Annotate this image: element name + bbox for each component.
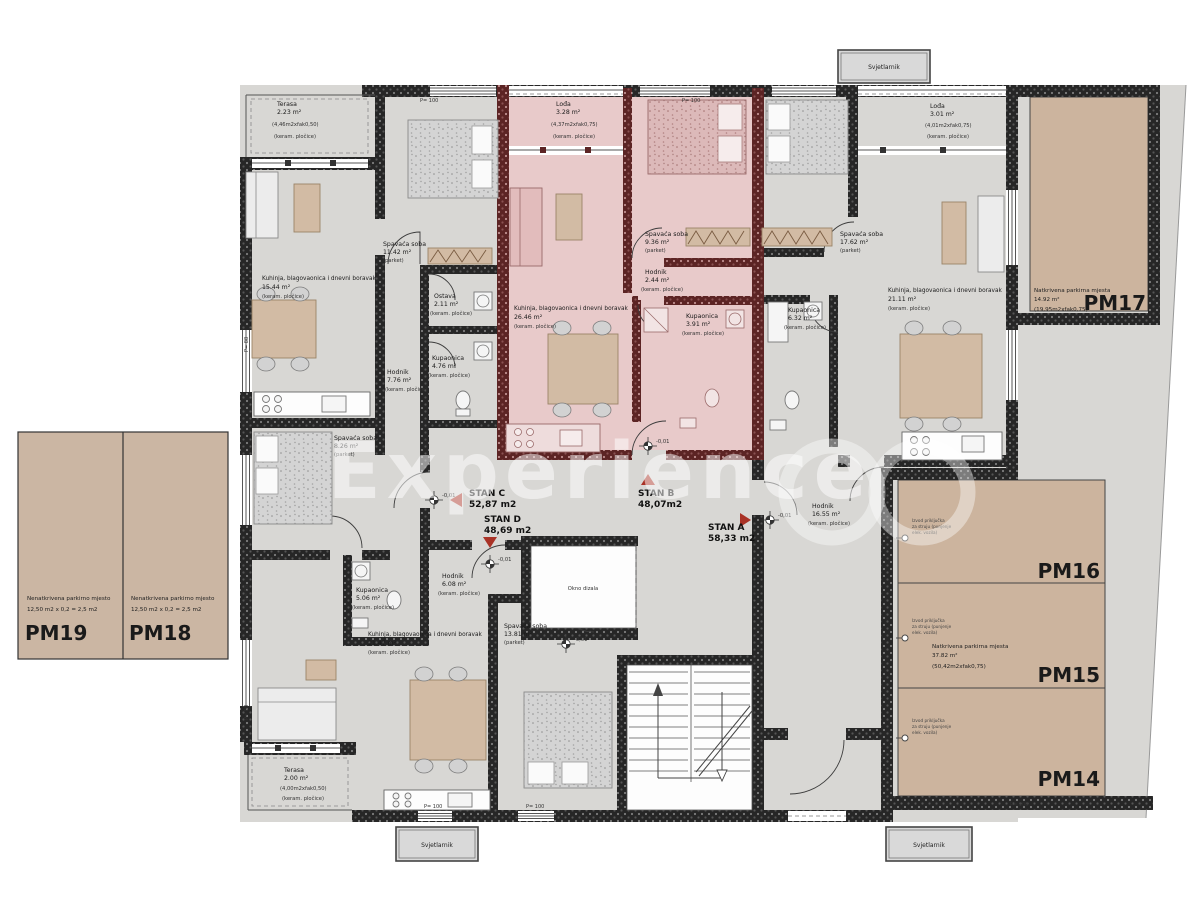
svg-text:21.11 m²: 21.11 m² bbox=[888, 296, 917, 303]
svg-text:13.81 m²: 13.81 m² bbox=[504, 631, 533, 638]
elevator-shaft: Okno dizala bbox=[531, 546, 636, 628]
ev-note-line: elek. vozila) bbox=[912, 630, 938, 635]
level-value: -0,01 bbox=[574, 637, 587, 643]
svg-text:(keram. pločice): (keram. pločice) bbox=[784, 324, 826, 331]
svg-text:(keram. pločice): (keram. pločice) bbox=[282, 795, 324, 802]
svg-text:Hodnik: Hodnik bbox=[442, 573, 464, 580]
skylight-top: Svjetlarnik bbox=[838, 50, 930, 83]
ev-note-line: Izvod priključka bbox=[912, 718, 945, 723]
wardrobe-bedroom-c1 bbox=[428, 248, 492, 264]
svg-text:Kupaonica: Kupaonica bbox=[788, 307, 820, 314]
svg-text:15.44 m²: 15.44 m² bbox=[262, 284, 291, 291]
skylight-label: Svjetlarnik bbox=[421, 842, 453, 849]
parapet-label: P= 100 bbox=[526, 804, 544, 810]
svg-text:Spavaća soba: Spavaća soba bbox=[840, 230, 883, 238]
svg-text:4.76 m²: 4.76 m² bbox=[432, 363, 457, 370]
svg-text:(keram. pločice): (keram. pločice) bbox=[368, 649, 410, 656]
kitchen-living-c bbox=[254, 392, 370, 416]
svg-text:(keram. pločice): (keram. pločice) bbox=[514, 323, 556, 330]
svg-text:(parket): (parket) bbox=[383, 258, 404, 264]
sliding-door-terasa-d bbox=[252, 744, 340, 753]
parapet-label: P= 100 bbox=[424, 804, 442, 810]
level-value: -0,01 bbox=[498, 557, 511, 563]
parking-label-pm16: PM16 bbox=[1038, 559, 1100, 583]
window-left-living-d bbox=[240, 640, 252, 706]
svg-text:2.11 m²: 2.11 m² bbox=[434, 301, 459, 308]
sliding-door-loggia-b bbox=[509, 146, 623, 155]
svg-text:3.01 m²: 3.01 m² bbox=[930, 111, 955, 118]
svg-text:3.28 m²: 3.28 m² bbox=[556, 109, 581, 116]
svg-text:(keram. pločice): (keram. pločice) bbox=[262, 293, 304, 300]
railing-loggia-b-top bbox=[509, 86, 623, 96]
parking-label-pm14: PM14 bbox=[1038, 767, 1100, 791]
svg-text:PM15: PM15 bbox=[1038, 663, 1100, 687]
railing-loggia-a-top bbox=[858, 86, 1006, 96]
svg-text:(4,37m2xfak0,75): (4,37m2xfak0,75) bbox=[551, 122, 598, 128]
svg-text:PM18: PM18 bbox=[129, 621, 191, 645]
skylight-bottom-left: Svjetlarnik bbox=[396, 827, 478, 861]
parapet-label: P= 100 bbox=[682, 98, 700, 104]
window-left-bedroom-c2 bbox=[240, 455, 252, 525]
svg-text:Kupaonica: Kupaonica bbox=[432, 355, 464, 362]
svg-text:Kuhinja, blagovaonica i dnevni: Kuhinja, blagovaonica i dnevni boravak bbox=[888, 288, 1003, 294]
wardrobe-bedroom-a bbox=[762, 228, 832, 246]
window-right-living-a bbox=[1006, 190, 1018, 265]
svg-text:7.76 m²: 7.76 m² bbox=[387, 377, 412, 384]
svg-text:Kupaonica: Kupaonica bbox=[686, 313, 718, 320]
parapet-label: P= 100 bbox=[1010, 802, 1028, 808]
svg-text:21.47 m²: 21.47 m² bbox=[368, 640, 397, 647]
window-top-bedroom-c bbox=[430, 86, 496, 96]
svg-text:Kupaonica: Kupaonica bbox=[356, 587, 388, 594]
svg-text:Nenatkrivena parkirno mjesto: Nenatkrivena parkirno mjesto bbox=[27, 596, 111, 602]
svg-text:Ostava: Ostava bbox=[434, 293, 456, 300]
svg-text:PM14: PM14 bbox=[1038, 767, 1100, 791]
ev-note-line: Izvod priključka bbox=[912, 618, 945, 623]
bed-bedroom-c1 bbox=[408, 120, 498, 198]
svg-text:Terasa: Terasa bbox=[276, 101, 297, 108]
svg-text:Lođa: Lođa bbox=[556, 101, 571, 108]
svg-text:6.32 m²: 6.32 m² bbox=[788, 315, 813, 322]
svg-text:26.46 m²: 26.46 m² bbox=[514, 314, 543, 321]
bed-bedroom-a bbox=[766, 100, 848, 174]
svg-text:PM16: PM16 bbox=[1038, 559, 1100, 583]
svg-text:(parket): (parket) bbox=[504, 640, 525, 646]
svg-text:2.44 m²: 2.44 m² bbox=[645, 277, 670, 284]
svg-text:(parket): (parket) bbox=[645, 248, 666, 254]
svg-text:Nenatkrivena parkirno mjesto: Nenatkrivena parkirno mjesto bbox=[131, 596, 215, 602]
svg-text:2.23 m²: 2.23 m² bbox=[277, 109, 302, 116]
window-top-bedroom-b bbox=[640, 86, 710, 96]
ev-note-line: elek. vozila) bbox=[912, 730, 938, 735]
window-top-bedroom-a bbox=[772, 86, 836, 96]
svg-text:12,50 m2 x 0,2 = 2,5 m2: 12,50 m2 x 0,2 = 2,5 m2 bbox=[27, 607, 98, 613]
svg-text:STAN A: STAN A bbox=[708, 523, 745, 533]
svg-text:(4,01m2xfak0,75): (4,01m2xfak0,75) bbox=[925, 123, 972, 129]
svg-text:2.00 m²: 2.00 m² bbox=[284, 775, 309, 782]
parapet-label: P= 100 bbox=[420, 98, 438, 104]
svg-text:Spavaća soba: Spavaća soba bbox=[383, 240, 426, 248]
svg-text:Hodnik: Hodnik bbox=[645, 269, 667, 276]
svg-text:(parket): (parket) bbox=[840, 248, 861, 254]
bed-bedroom-d bbox=[524, 692, 612, 788]
skylight-bottom-right: Svjetlarnik bbox=[886, 827, 972, 861]
svg-text:PM19: PM19 bbox=[25, 621, 87, 645]
svg-text:Spavaća soba: Spavaća soba bbox=[645, 230, 688, 238]
svg-text:(keram. pločice): (keram. pločice) bbox=[888, 305, 930, 312]
ev-note-line: za struju (punjenje bbox=[912, 624, 952, 629]
wardrobe-bedroom-b bbox=[686, 228, 750, 246]
svg-text:(keram. pločice): (keram. pločice) bbox=[274, 133, 316, 140]
dining-table-living-a bbox=[900, 321, 982, 431]
svg-text:12,50 m2 x 0,2 = 2,5 m2: 12,50 m2 x 0,2 = 2,5 m2 bbox=[131, 607, 202, 613]
svg-text:58,33 m2: 58,33 m2 bbox=[708, 534, 755, 544]
svg-text:(keram. pločice): (keram. pločice) bbox=[428, 372, 470, 379]
dining-table-living-b bbox=[548, 321, 618, 417]
svg-text:Hodnik: Hodnik bbox=[387, 369, 409, 376]
svg-text:Spavaća soba: Spavaća soba bbox=[504, 622, 547, 630]
svg-text:Terasa: Terasa bbox=[283, 767, 304, 774]
staircase bbox=[627, 665, 752, 810]
svg-text:14.92 m²: 14.92 m² bbox=[1034, 296, 1059, 303]
svg-text:(4,46m2xfak0,50): (4,46m2xfak0,50) bbox=[272, 122, 319, 128]
ev-note-line: Izvod priključka bbox=[912, 518, 945, 523]
parking-label-pm17: Natkrivena parkirna mjesta 14.92 m² (19,… bbox=[1034, 288, 1146, 315]
skylight-label: Svjetlarnik bbox=[913, 842, 945, 849]
svg-text:Kuhinja, blagovaonica i dnevni: Kuhinja, blagovaonica i dnevni boravak bbox=[514, 306, 629, 312]
svg-text:3.91 m²: 3.91 m² bbox=[686, 321, 711, 328]
dining-table-living-d bbox=[410, 667, 486, 773]
svg-text:(keram. pločice): (keram. pločice) bbox=[808, 520, 850, 527]
svg-text:48,69 m2: 48,69 m2 bbox=[484, 526, 531, 536]
svg-text:(keram. pločice): (keram. pločice) bbox=[553, 133, 595, 140]
building-entrance-opening bbox=[788, 811, 846, 821]
svg-text:(50,42m2xfak0,75): (50,42m2xfak0,75) bbox=[932, 664, 986, 670]
svg-text:(keram. pločice): (keram. pločice) bbox=[385, 386, 427, 393]
window-bottom-kitchen-d bbox=[418, 811, 452, 821]
svg-text:11.42 m²: 11.42 m² bbox=[383, 249, 412, 256]
svg-text:17.62 m²: 17.62 m² bbox=[840, 239, 869, 246]
skylight-label: Svjetlarnik bbox=[868, 64, 900, 71]
svg-text:(4,00m2xfak0,50): (4,00m2xfak0,50) bbox=[280, 786, 327, 792]
svg-text:(keram. pločice): (keram. pločice) bbox=[352, 604, 394, 611]
window-right-kitchen-a bbox=[1006, 330, 1018, 400]
bed-bedroom-c2 bbox=[254, 432, 332, 524]
svg-text:5.06 m²: 5.06 m² bbox=[356, 595, 381, 602]
svg-text:Natkrivena parkirna mjesta: Natkrivena parkirna mjesta bbox=[932, 644, 1008, 650]
svg-text:(keram. pločice): (keram. pločice) bbox=[641, 286, 683, 293]
ev-note-line: za struju (punjenje bbox=[912, 724, 952, 729]
svg-text:(keram. pločice): (keram. pločice) bbox=[927, 133, 969, 140]
svg-text:(keram. pločice): (keram. pločice) bbox=[438, 590, 480, 597]
svg-text:(keram. pločice): (keram. pločice) bbox=[430, 310, 472, 317]
window-bottom-bedroom-d bbox=[518, 811, 554, 821]
parapet-label: P= 88 bbox=[244, 337, 250, 352]
svg-text:9.36 m²: 9.36 m² bbox=[645, 239, 670, 246]
sliding-door-loggia-a bbox=[858, 146, 1006, 155]
svg-text:(keram. pločice): (keram. pločice) bbox=[682, 330, 724, 337]
svg-text:PM17: PM17 bbox=[1084, 291, 1146, 315]
floor-plan-drawing: Okno dizala Svjetlarnik Svjetlarnik Svje… bbox=[0, 0, 1200, 900]
floor-plan-page: Okno dizala Svjetlarnik Svjetlarnik Svje… bbox=[0, 0, 1200, 900]
svg-text:(19,95m2xfak0,75): (19,95m2xfak0,75) bbox=[1034, 307, 1088, 313]
svg-text:Lođa: Lođa bbox=[930, 103, 945, 110]
bed-bedroom-b bbox=[648, 100, 746, 174]
elevator-label: Okno dizala bbox=[568, 586, 598, 592]
svg-text:6.08 m²: 6.08 m² bbox=[442, 581, 467, 588]
parapet-label: P= 88 bbox=[244, 705, 250, 720]
sliding-door-terasa-c bbox=[252, 159, 368, 168]
svg-text:Kuhinja, blagovaonica i dnevni: Kuhinja, blagovaonica i dnevni boravak bbox=[368, 632, 483, 638]
svg-text:Kuhinja, blagovaonica i dnevni: Kuhinja, blagovaonica i dnevni boravak bbox=[262, 276, 377, 282]
parking-stall-pm17 bbox=[1030, 97, 1148, 311]
svg-text:37.82 m²: 37.82 m² bbox=[932, 652, 957, 659]
parapet-label: P= 88 bbox=[244, 585, 250, 600]
